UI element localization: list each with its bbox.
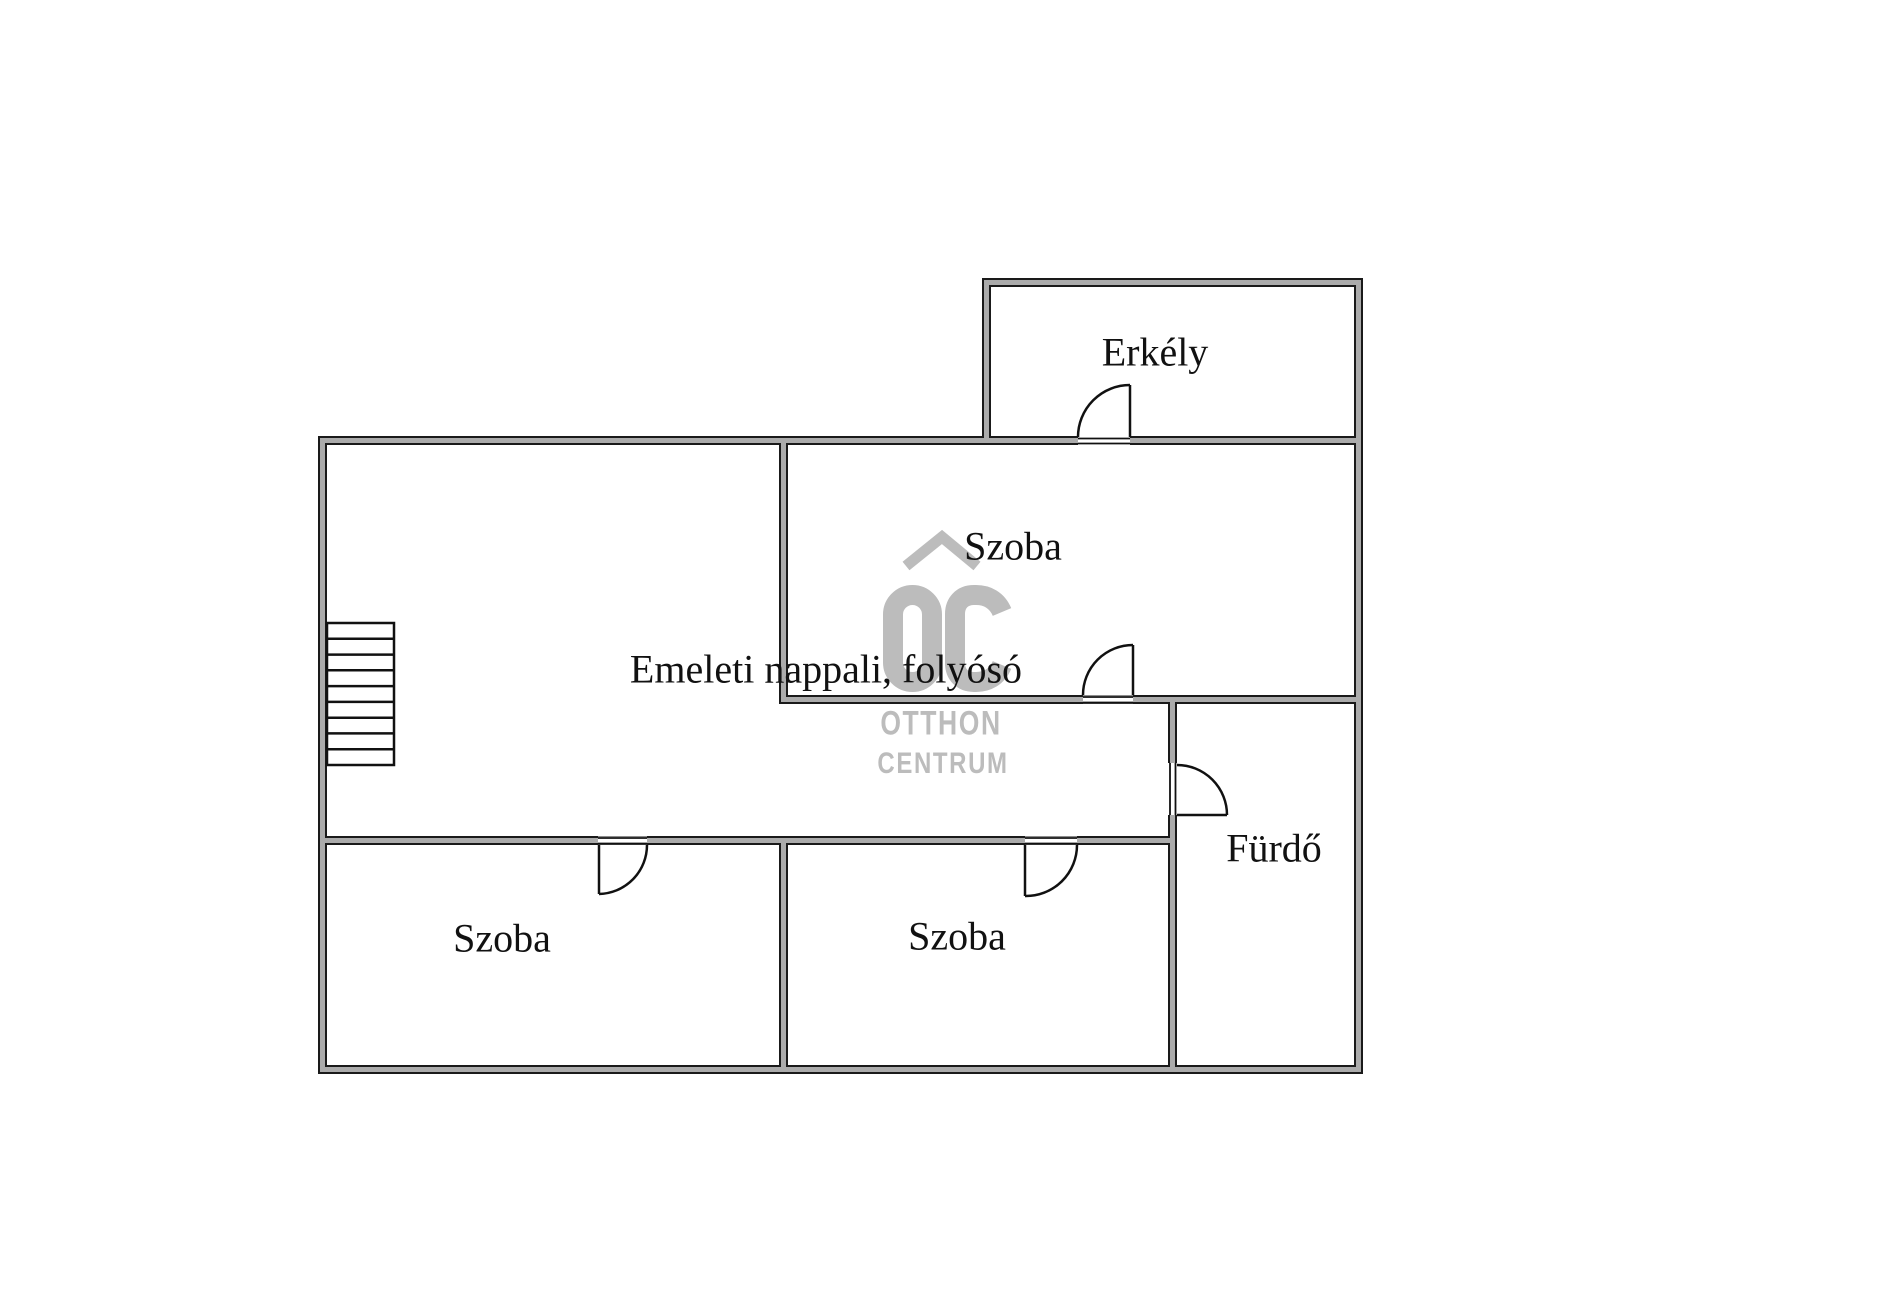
door-balcony — [1078, 385, 1130, 446]
door-bedroom-left-swing-arc — [599, 845, 647, 894]
room-label-bedroom-left: Szoba — [453, 915, 551, 962]
room-label-bathroom: Fürdő — [1226, 825, 1322, 872]
door-bedroom-top-swing-arc — [1083, 645, 1133, 695]
door-bedroom-left — [598, 837, 647, 895]
door-bedroom-middle — [1025, 837, 1077, 897]
floor-plan-canvas: OTTHON CENTRUM — [0, 0, 1885, 1316]
room-label-living: Emeleti nappali, folyósó — [630, 646, 1022, 693]
staircase-outline — [327, 623, 394, 765]
door-bathroom-swing-arc — [1177, 765, 1227, 815]
room-label-balcony: Erkély — [1102, 329, 1209, 376]
room-label-bedroom-middle: Szoba — [908, 913, 1006, 960]
room-label-bedroom-top: Szoba — [964, 523, 1062, 570]
door-bedroom-top — [1083, 645, 1133, 704]
watermark-brand-line2: CENTRUM — [877, 747, 1008, 781]
watermark-brand-line1: OTTHON — [880, 705, 1001, 744]
staircase — [327, 623, 394, 765]
door-bedroom-middle-swing-arc — [1025, 845, 1077, 896]
door-bathroom — [1168, 763, 1228, 815]
door-balcony-swing-arc — [1078, 385, 1130, 437]
